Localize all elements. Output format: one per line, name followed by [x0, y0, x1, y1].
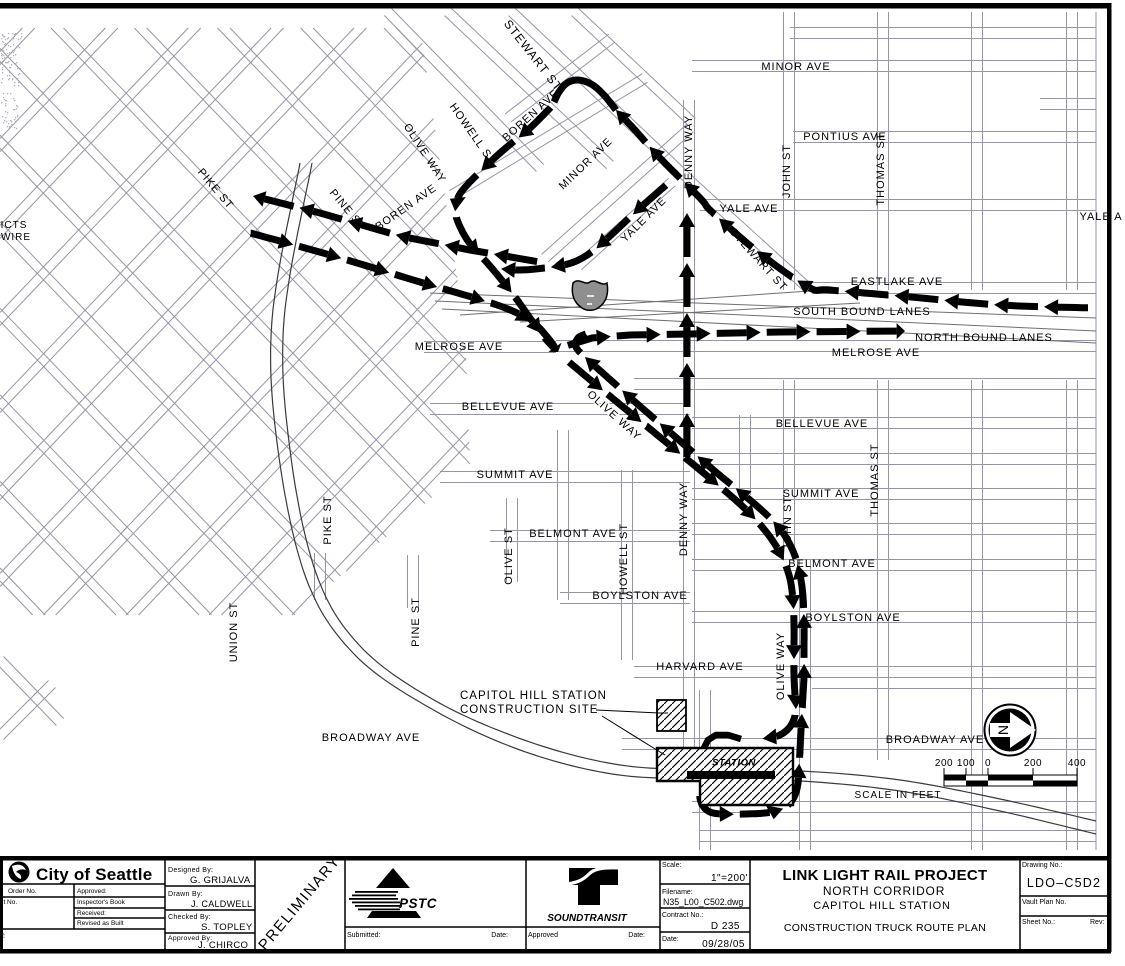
svg-text:Order No.: Order No.	[8, 888, 37, 895]
svg-text:MELROSE AVE: MELROSE AVE	[415, 341, 503, 353]
svg-text:0: 0	[985, 758, 991, 769]
svg-text:Date:: Date:	[491, 932, 508, 939]
svg-text:MELROSE AVE: MELROSE AVE	[832, 347, 920, 359]
svg-text:NORTH BOUND LANES: NORTH BOUND LANES	[915, 332, 1053, 344]
svg-text:SOUNDTRANSIT: SOUNDTRANSIT	[547, 913, 627, 924]
svg-text:BOYLSTON AVE: BOYLSTON AVE	[592, 590, 687, 602]
svg-text:Drawing No.:: Drawing No.:	[1022, 862, 1063, 869]
svg-text:Approved: Approved	[528, 932, 558, 939]
svg-text:Revised as Built: Revised as Built	[77, 920, 124, 927]
svg-text:CAPITOL HILL STATION: CAPITOL HILL STATION	[460, 690, 607, 702]
svg-text:LDO–C5D2: LDO–C5D2	[1027, 876, 1101, 890]
svg-text:Rev:: Rev:	[1090, 919, 1104, 926]
svg-text:f:: f:	[2, 933, 6, 940]
svg-text:Submitted:: Submitted:	[347, 932, 381, 939]
svg-text:STATION: STATION	[712, 758, 756, 769]
svg-text:N: N	[995, 725, 1011, 735]
svg-text:J. CHIRCO: J. CHIRCO	[198, 940, 248, 951]
svg-text:Drawn By:: Drawn By:	[168, 891, 203, 898]
svg-text:200: 200	[935, 758, 953, 769]
svg-text:Approved:: Approved:	[77, 888, 107, 895]
svg-text:Designed By:: Designed By:	[168, 867, 213, 874]
svg-text:DENNY WAY: DENNY WAY	[678, 482, 690, 556]
svg-text:Sheet No.:: Sheet No.:	[1022, 919, 1055, 926]
svg-text:ICTS: ICTS	[1, 220, 28, 231]
svg-text:THOMAS ST: THOMAS ST	[875, 132, 887, 205]
svg-text:BELMONT AVE: BELMONT AVE	[529, 528, 617, 540]
svg-text:Date:: Date:	[628, 932, 645, 939]
svg-text:NORTH CORRIDOR: NORTH CORRIDOR	[823, 884, 945, 898]
svg-text:THOMAS ST: THOMAS ST	[869, 443, 881, 516]
svg-text:SUMMIT AVE: SUMMIT AVE	[783, 488, 860, 500]
svg-text:Contract No.:: Contract No.:	[662, 912, 703, 919]
svg-text:J. CALDWELL: J. CALDWELL	[191, 899, 252, 909]
svg-text:Date:: Date:	[662, 936, 679, 943]
svg-text:N35_L00_C502.dwg: N35_L00_C502.dwg	[663, 897, 743, 907]
svg-text:MINOR AVE: MINOR AVE	[761, 61, 830, 73]
svg-text:400: 400	[1068, 758, 1086, 769]
svg-text:Scale:: Scale:	[662, 862, 682, 869]
svg-text:LINK LIGHT RAIL PROJECT: LINK LIGHT RAIL PROJECT	[783, 867, 988, 884]
svg-text:EASTLAKE AVE: EASTLAKE AVE	[851, 276, 944, 288]
svg-text:D 235: D 235	[711, 921, 740, 932]
svg-text:WIRE: WIRE	[1, 232, 31, 243]
svg-text:Checked By:: Checked By:	[168, 914, 211, 921]
svg-text:CONSTRUCTION SITE: CONSTRUCTION SITE	[460, 704, 598, 716]
svg-text:Inspector's Book: Inspector's Book	[77, 899, 126, 906]
svg-text:BELLEVUE AVE: BELLEVUE AVE	[462, 401, 555, 413]
svg-text:Received:: Received:	[77, 910, 106, 917]
svg-text:200: 200	[1024, 758, 1042, 769]
svg-text:PSTC: PSTC	[399, 896, 437, 911]
svg-text:CONSTRUCTION TRUCK ROUTE PLAN: CONSTRUCTION TRUCK ROUTE PLAN	[784, 922, 986, 934]
svg-text:100: 100	[957, 758, 975, 769]
svg-text:OLIVE WAY: OLIVE WAY	[775, 632, 787, 700]
svg-text:PIKE ST: PIKE ST	[322, 495, 334, 544]
svg-text:BELMONT AVE: BELMONT AVE	[788, 558, 876, 570]
svg-text:PINE ST: PINE ST	[410, 597, 422, 647]
svg-text:1"=200': 1"=200'	[711, 873, 748, 884]
svg-text:SUMMIT AVE: SUMMIT AVE	[477, 469, 554, 481]
svg-text:City of Seattle: City of Seattle	[36, 865, 152, 884]
svg-text:G. GRIJALVA: G. GRIJALVA	[190, 875, 251, 886]
svg-text:JOHN ST: JOHN ST	[781, 144, 793, 198]
svg-text:BROADWAY AVE: BROADWAY AVE	[322, 732, 420, 744]
svg-text:YALE A: YALE A	[1079, 211, 1122, 223]
svg-text:OLIVE ST: OLIVE ST	[503, 527, 515, 585]
svg-text:SCALE IN FEET: SCALE IN FEET	[855, 790, 942, 801]
svg-text:Filename:: Filename:	[662, 889, 693, 896]
svg-text:YALE AVE: YALE AVE	[720, 203, 779, 215]
svg-text:it No.: it No.	[2, 899, 17, 906]
svg-text:BOYLSTON AVE: BOYLSTON AVE	[805, 612, 900, 624]
svg-text:CAPITOL HILL STATION: CAPITOL HILL STATION	[813, 900, 950, 912]
svg-text:BELLEVUE AVE: BELLEVUE AVE	[776, 418, 869, 430]
svg-text:09/28/05: 09/28/05	[702, 939, 745, 950]
svg-text:DENNY WAY: DENNY WAY	[683, 115, 695, 189]
svg-text:Vault Plan No.: Vault Plan No.	[1022, 899, 1066, 906]
svg-text:BROADWAY AVE: BROADWAY AVE	[886, 734, 984, 746]
svg-text:HARVARD AVE: HARVARD AVE	[656, 661, 743, 673]
svg-text:S. TOPLEY: S. TOPLEY	[201, 922, 253, 933]
svg-text:SOUTH BOUND LANES: SOUTH BOUND LANES	[793, 306, 930, 318]
svg-text:JOHN ST: JOHN ST	[782, 496, 794, 550]
svg-text:HOWELL ST: HOWELL ST	[618, 523, 630, 595]
svg-text:UNION ST: UNION ST	[228, 602, 240, 663]
